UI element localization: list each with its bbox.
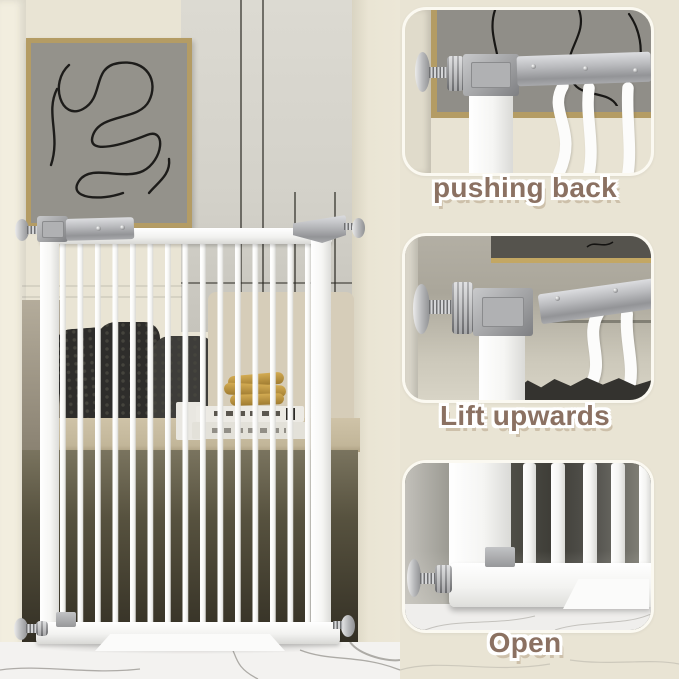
panel-pushing-back — [402, 7, 654, 176]
latch-housing-face — [482, 297, 524, 327]
latch-housing-face — [42, 221, 64, 238]
gate-bottom-clamp — [56, 612, 76, 627]
gate-bar — [551, 463, 565, 569]
artwork-scribble — [491, 236, 651, 253]
threaded-spindle — [429, 67, 449, 78]
panel-lift-upwards — [402, 233, 654, 403]
gate-bar — [583, 463, 597, 569]
gate-bar — [611, 463, 625, 569]
screw — [583, 66, 588, 71]
threaded-spindle — [333, 621, 343, 629]
wall-cup — [415, 52, 430, 92]
tension-knob — [36, 621, 48, 636]
gate-right-post — [311, 224, 331, 640]
latch-housing-face — [471, 62, 511, 88]
artwork-scribble — [31, 43, 177, 213]
wall-corner — [405, 10, 431, 173]
framed-abstract-artwork — [26, 38, 192, 228]
tension-knob — [435, 565, 452, 593]
panel-open — [402, 460, 654, 633]
gate-left-post — [40, 224, 59, 640]
screw — [531, 64, 536, 69]
tension-knob — [452, 282, 473, 334]
screw — [555, 296, 560, 301]
screw — [613, 288, 618, 293]
gate-bar — [523, 463, 536, 569]
screw — [633, 68, 638, 73]
living-room-photo — [0, 0, 400, 679]
caption-pushing-back: pushing back — [402, 172, 648, 204]
gate-bars-curved — [533, 82, 651, 173]
gate-step-plate — [95, 634, 285, 651]
gate-bar — [639, 463, 651, 569]
wall-cup — [407, 559, 421, 597]
instruction-column: pushing back — [400, 0, 679, 679]
gate-post — [469, 96, 513, 173]
wall-cup — [413, 284, 430, 334]
wall-cup — [352, 218, 365, 238]
gate-post — [479, 336, 525, 400]
screw — [96, 226, 101, 231]
gate-vertical-bars — [60, 240, 312, 632]
caption-lift-upwards: Lift upwards — [402, 400, 648, 432]
threaded-spindle-extended — [429, 300, 454, 314]
faint-marble-veins — [400, 640, 679, 679]
tension-knob — [447, 56, 464, 91]
latch-clamp-block — [485, 547, 515, 567]
framed-artwork-edge — [491, 236, 651, 263]
right-wall — [352, 0, 400, 679]
product-image: pushing back — [0, 0, 679, 679]
screw — [120, 225, 125, 230]
wall-cup — [341, 615, 355, 637]
